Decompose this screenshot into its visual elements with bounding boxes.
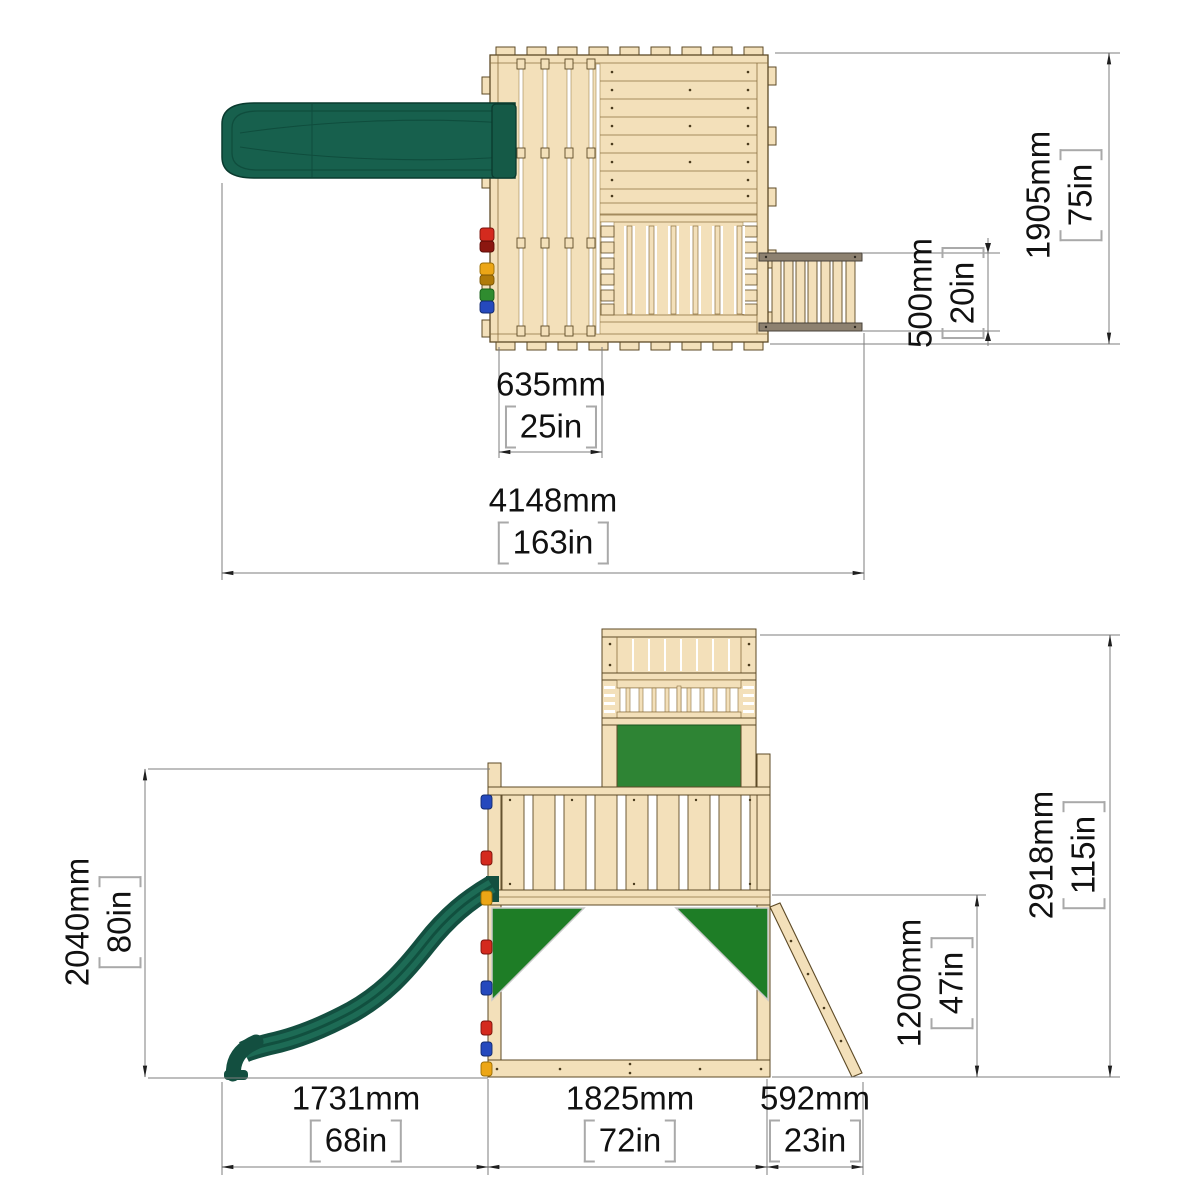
right-bracket: [586, 406, 597, 449]
climbing-hold-blue: [480, 301, 494, 313]
dimension-diagram: 635mm 25in 4148mm 163in 500mm 20in 1905m…: [0, 0, 1200, 1200]
topview-slide: [222, 103, 516, 178]
dim-mm: 1825mm: [566, 1082, 694, 1115]
dim-inch-box: 23in: [769, 1120, 861, 1163]
left-bracket: [769, 1120, 780, 1163]
sideview-slide: [224, 876, 499, 1080]
left-bracket: [931, 1018, 974, 1029]
climbing-hold-yellow: [480, 263, 494, 275]
climbing-hold-red: [480, 228, 494, 241]
right-bracket: [931, 937, 974, 948]
left-bracket: [584, 1120, 595, 1163]
slide-hood: [492, 104, 516, 178]
right-bracket: [942, 247, 985, 258]
left-bracket: [942, 328, 985, 339]
sideview-green-panel: [617, 725, 741, 787]
right-bracket: [1063, 801, 1106, 812]
dim-label-1731: 1731mm 68in: [292, 1082, 420, 1163]
dim-label-2040: 2040mm 80in: [61, 858, 142, 986]
left-bracket: [310, 1120, 321, 1163]
panel-post-left: [602, 725, 617, 787]
dim-inch-box: 47in: [931, 937, 974, 1029]
dim-mm: 592mm: [760, 1082, 870, 1115]
panel-post-right: [741, 725, 756, 787]
dim-mm: 2918mm: [1025, 791, 1058, 919]
dim-inch-box: 75in: [1060, 149, 1103, 241]
left-bracket: [1060, 230, 1103, 241]
top-view: [222, 47, 1120, 580]
dim-mm: 4148mm: [489, 484, 617, 517]
left-bracket: [498, 522, 509, 565]
balcony-top-rail: [759, 253, 862, 261]
dim-label-2918: 2918mm 115in: [1025, 791, 1106, 919]
dim-inch-box: 20in: [942, 247, 985, 339]
left-bracket: [505, 406, 516, 449]
dim-inch-box: 80in: [99, 876, 142, 968]
dim-label-635: 635mm 25in: [496, 368, 606, 449]
dim-label-1825: 1825mm 72in: [566, 1082, 694, 1163]
right-bracket: [99, 876, 142, 887]
dim-mm: 1905mm: [1022, 131, 1055, 259]
balcony-bottom-rail: [759, 323, 862, 331]
dim-mm: 500mm: [904, 238, 937, 348]
topview-climbing-holds: [480, 228, 494, 313]
dim-inch-box: 72in: [584, 1120, 676, 1163]
right-bracket: [665, 1120, 676, 1163]
dim-mm: 1731mm: [292, 1082, 420, 1115]
dim-label-1200: 1200mm 47in: [893, 919, 974, 1047]
sideview-railing: [488, 787, 770, 905]
dim-label-500: 500mm 20in: [904, 238, 985, 348]
dim-mm: 2040mm: [61, 858, 94, 986]
dim-inch-box: 25in: [505, 406, 597, 449]
right-bracket: [850, 1120, 861, 1163]
dim-label-1905: 1905mm 75in: [1022, 131, 1103, 259]
sideview-tarp-triangles: [492, 908, 768, 1000]
right-bracket: [597, 522, 608, 565]
dim-label-4148: 4148mm 163in: [489, 484, 617, 565]
dim-inch-box: 68in: [310, 1120, 402, 1163]
climbing-hold-green: [480, 289, 494, 301]
sideview-crows-nest: [602, 629, 756, 725]
dim-inch-box: 115in: [1063, 801, 1106, 909]
right-bracket: [1060, 149, 1103, 160]
dim-inch-box: 163in: [498, 522, 609, 565]
left-bracket: [1063, 898, 1106, 909]
topview-balcony: [759, 253, 862, 331]
sideview-bottom-beam: [488, 1060, 770, 1077]
dim-label-592: 592mm 23in: [760, 1082, 870, 1163]
left-bracket: [99, 957, 142, 968]
dim-mm: 1200mm: [893, 919, 926, 1047]
sideview-ladder: [770, 903, 862, 1077]
right-bracket: [391, 1120, 402, 1163]
dim-mm: 635mm: [496, 368, 606, 401]
